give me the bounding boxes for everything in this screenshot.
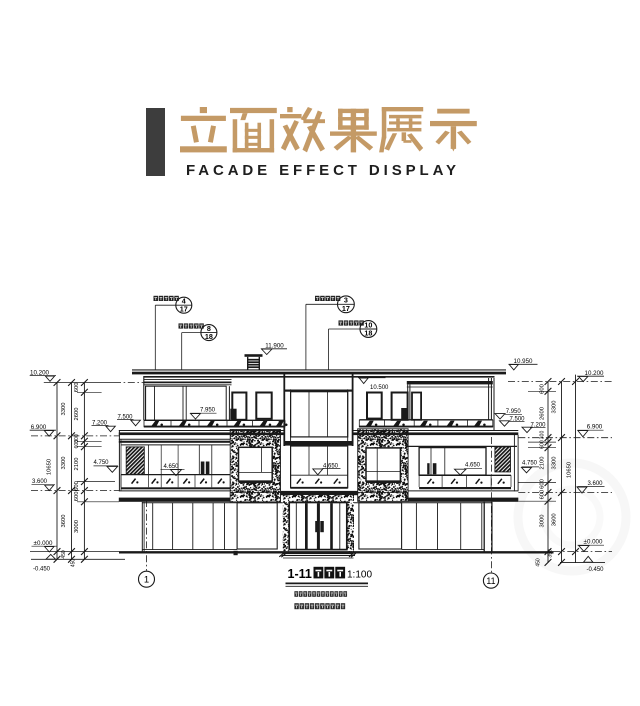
svg-text:450: 450 (71, 559, 77, 568)
svg-text:2100: 2100 (74, 458, 80, 471)
svg-text:600: 600 (540, 384, 546, 394)
svg-text:3300: 3300 (551, 457, 557, 470)
svg-text:600: 600 (540, 440, 546, 449)
svg-text:3300: 3300 (61, 403, 67, 416)
svg-text:10.950: 10.950 (514, 358, 533, 365)
svg-text:1:100: 1:100 (347, 570, 372, 581)
svg-text:3300: 3300 (551, 401, 557, 414)
svg-text:2100: 2100 (540, 457, 546, 470)
svg-text:1: 1 (144, 575, 149, 586)
svg-text:600: 600 (74, 440, 80, 449)
svg-text:600: 600 (540, 479, 546, 489)
svg-text:11.900: 11.900 (265, 342, 284, 349)
svg-text:11: 11 (486, 576, 495, 586)
svg-text:4.750: 4.750 (522, 461, 538, 467)
svg-text:10650: 10650 (47, 459, 53, 475)
svg-text:6.900: 6.900 (587, 424, 603, 431)
svg-text:10.500: 10.500 (370, 385, 389, 391)
svg-text:17: 17 (342, 304, 350, 313)
svg-text:3000: 3000 (540, 515, 546, 528)
svg-text:FACADE EFFECT DISPLAY: FACADE EFFECT DISPLAY (186, 162, 460, 179)
svg-text:2600: 2600 (540, 407, 546, 420)
svg-text:350: 350 (548, 549, 554, 558)
svg-text:3000: 3000 (74, 520, 80, 533)
svg-text:600: 600 (74, 492, 80, 502)
svg-text:10650: 10650 (566, 462, 572, 478)
svg-text:450: 450 (61, 550, 67, 559)
svg-text:17: 17 (180, 304, 188, 313)
svg-text:600: 600 (540, 490, 546, 500)
svg-text:1-11: 1-11 (288, 567, 312, 581)
svg-text:3.600: 3.600 (32, 479, 48, 485)
svg-text:3.600: 3.600 (587, 481, 603, 487)
svg-text:450: 450 (536, 558, 542, 567)
svg-text:4.650: 4.650 (465, 463, 481, 469)
svg-text:600: 600 (74, 481, 80, 491)
svg-text:3600: 3600 (61, 515, 67, 528)
svg-text:-0.450: -0.450 (586, 567, 604, 573)
svg-text:±0.000: ±0.000 (584, 538, 603, 545)
svg-text:600: 600 (74, 383, 80, 393)
svg-text:10.200: 10.200 (585, 370, 604, 377)
svg-text:4.750: 4.750 (93, 460, 109, 466)
svg-text:-0.450: -0.450 (33, 567, 51, 573)
svg-text:2600: 2600 (74, 408, 80, 421)
svg-text:18: 18 (205, 332, 213, 341)
svg-text:300: 300 (540, 431, 546, 440)
svg-text:7.950: 7.950 (200, 408, 216, 414)
svg-text:3300: 3300 (61, 457, 67, 470)
svg-text:3600: 3600 (551, 513, 557, 526)
svg-text:18: 18 (364, 329, 372, 338)
